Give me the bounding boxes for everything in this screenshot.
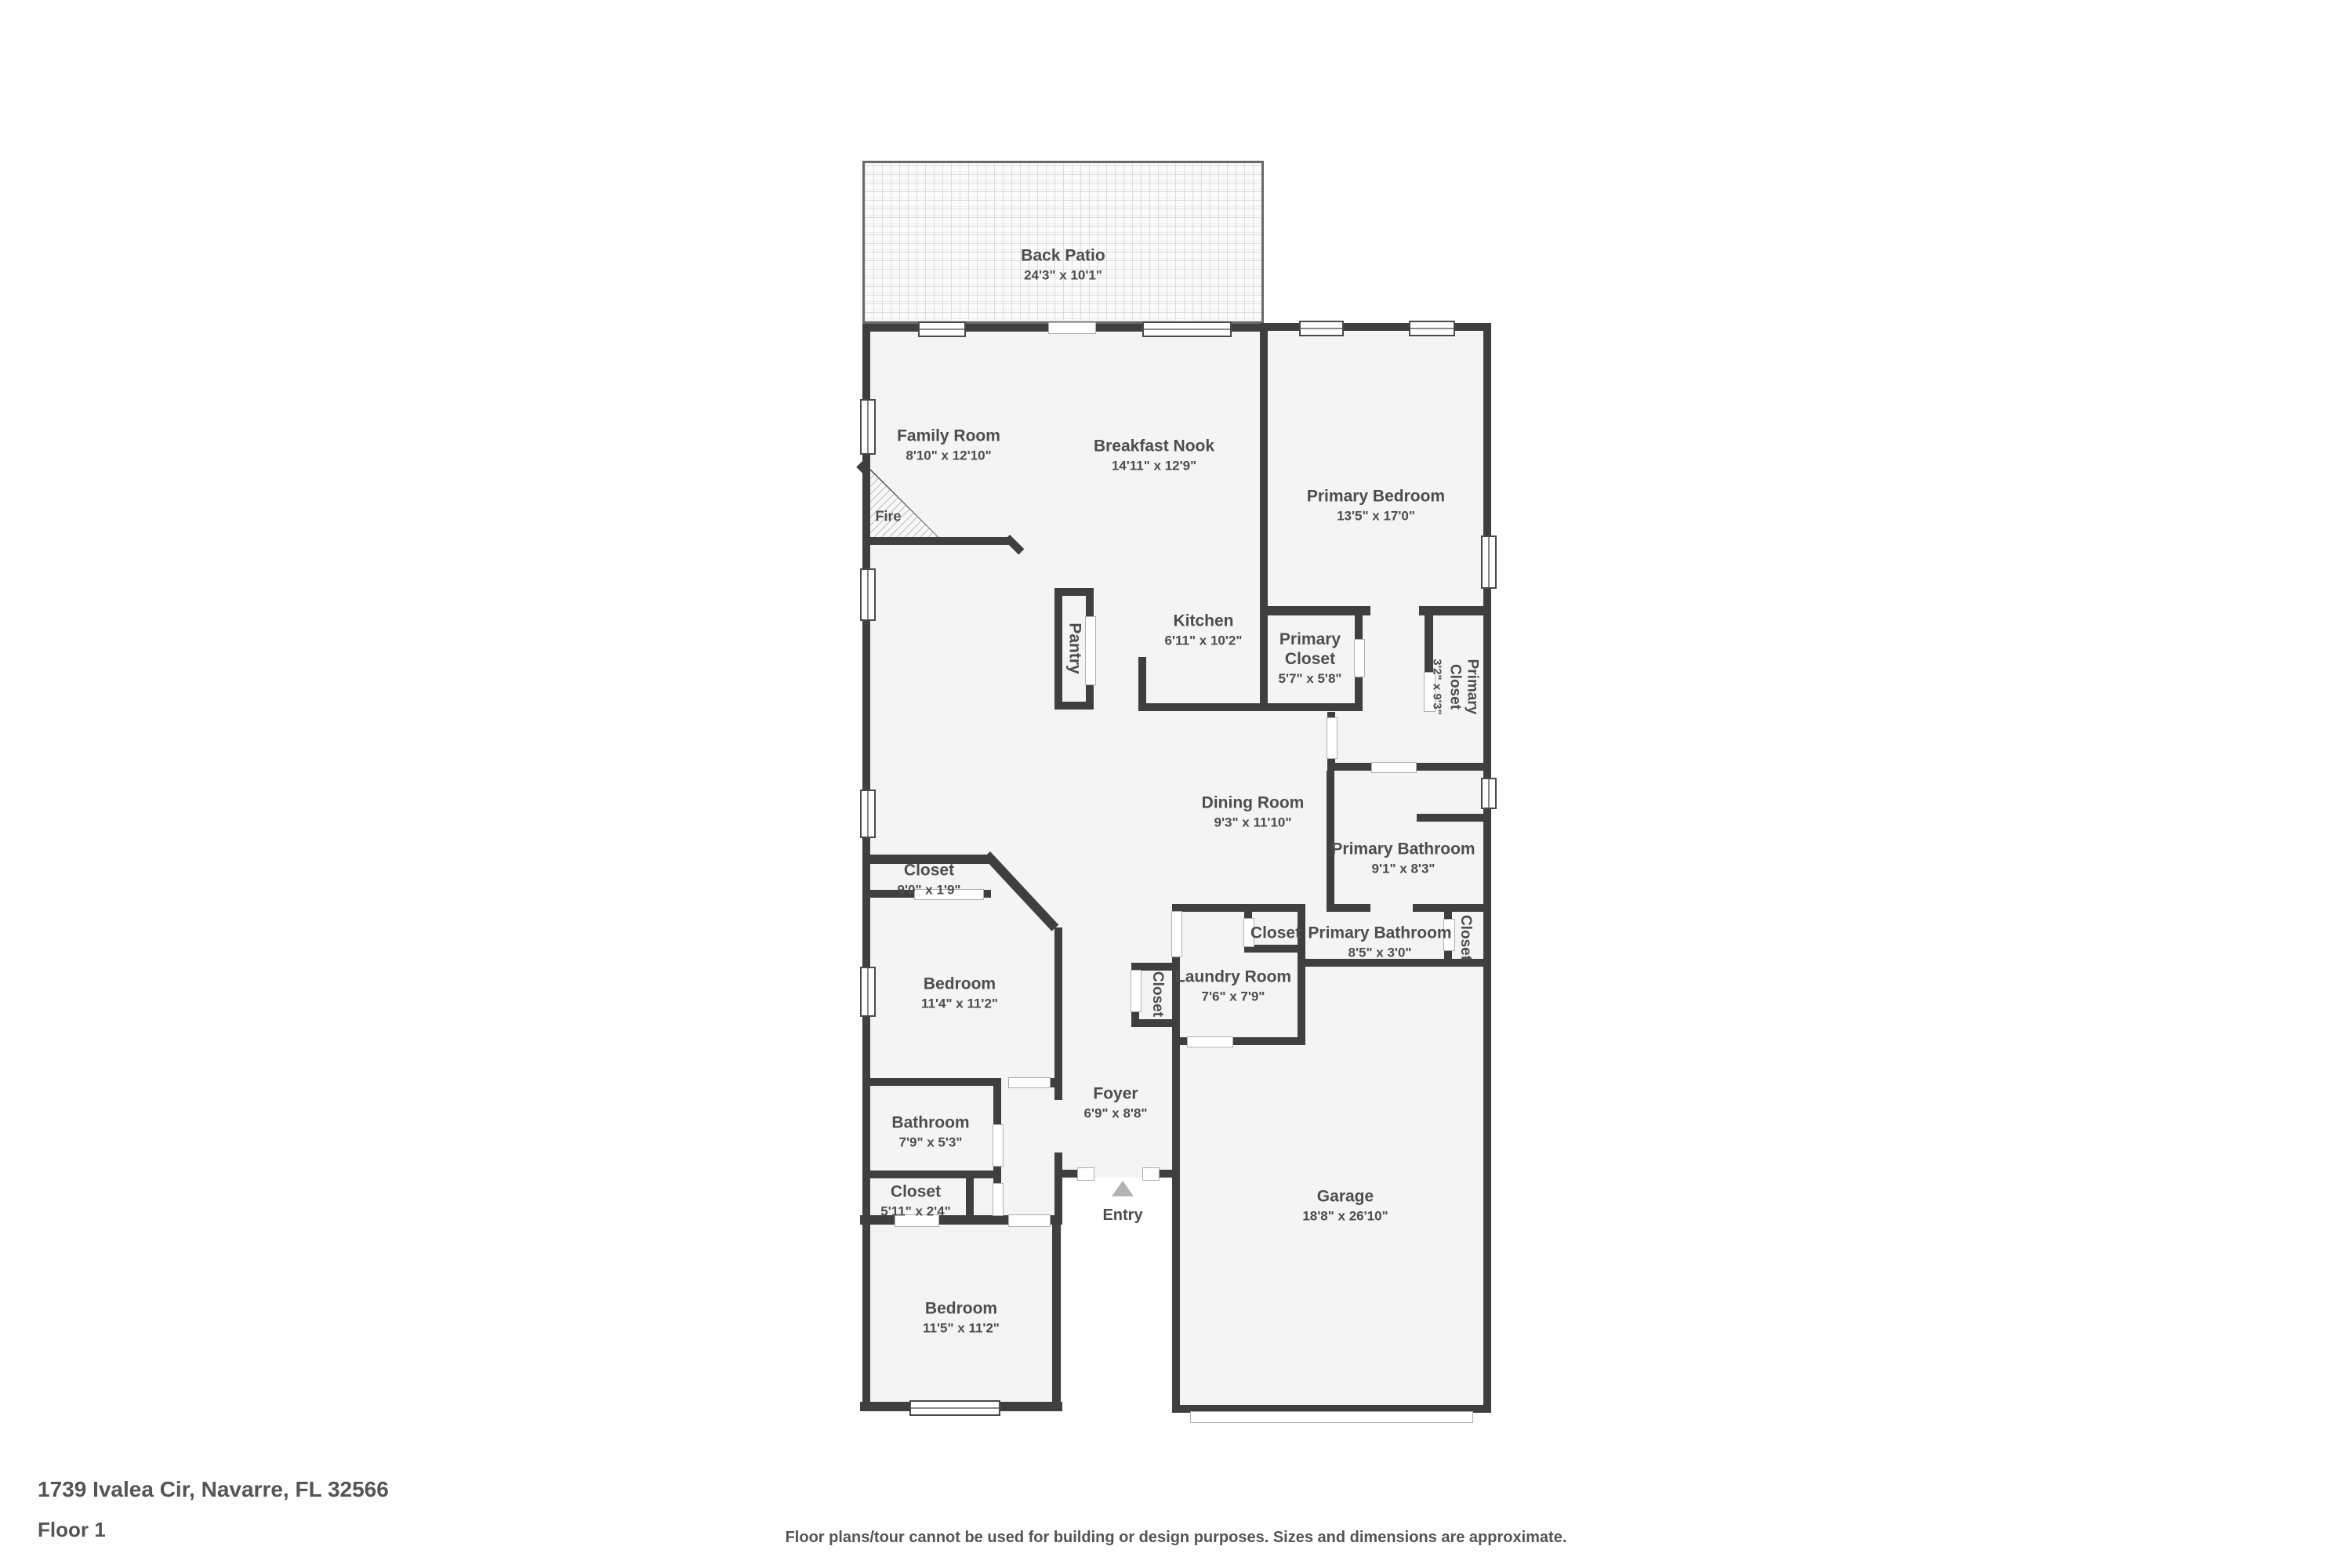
window xyxy=(860,967,876,1017)
wall xyxy=(993,1086,1001,1125)
wall xyxy=(1054,927,1062,1100)
door-opening xyxy=(1327,717,1338,759)
door-opening xyxy=(1008,1214,1051,1227)
room-label-laundry-closet: Closet xyxy=(1250,924,1301,944)
door-opening xyxy=(1048,322,1096,334)
room-label-primary-bedroom: Primary Bedroom13'5" x 17'0" xyxy=(1307,488,1445,524)
window xyxy=(1481,535,1497,589)
wall xyxy=(1483,323,1491,1413)
footer-address: 1739 Ivalea Cir, Navarre, FL 32566 xyxy=(38,1477,389,1502)
door-opening xyxy=(1085,616,1096,685)
room-label-closet-right: Closet xyxy=(1457,915,1474,960)
wall xyxy=(1355,615,1363,641)
wall xyxy=(1260,606,1370,615)
room-label-fireplace: Fire xyxy=(875,508,901,524)
window xyxy=(1299,321,1344,336)
wall xyxy=(1231,1037,1305,1045)
door-opening xyxy=(1187,1036,1233,1047)
door-opening xyxy=(993,1124,1004,1167)
window xyxy=(860,399,876,455)
wall xyxy=(1172,904,1301,912)
room-label-primary-closet-2: Primary Closet3'2" x 9'3" xyxy=(1430,659,1481,714)
door-opening xyxy=(1171,911,1182,957)
wall xyxy=(1172,1045,1180,1405)
wall xyxy=(1172,1037,1188,1045)
room-label-laundry-room: Laundry Room7'6" x 7'9" xyxy=(1175,968,1291,1005)
door-opening xyxy=(1131,970,1142,1012)
room-label-closet-small: Closet5'11" x 2'4" xyxy=(880,1183,950,1220)
room-label-back-patio: Back Patio24'3" x 10'1" xyxy=(1021,247,1105,284)
window xyxy=(918,321,966,337)
wall xyxy=(862,1078,1001,1086)
wall xyxy=(1131,1019,1180,1027)
wall xyxy=(1054,588,1094,596)
door-opening xyxy=(1354,639,1365,677)
room-label-primary-bathroom-1: Primary Bathroom9'1" x 8'3" xyxy=(1331,840,1475,877)
fireplace-wall xyxy=(862,537,1011,545)
door-opening xyxy=(1008,1077,1051,1088)
room-label-primary-closet-1: Primary Closet5'7" x 5'8" xyxy=(1279,630,1342,687)
room-label-family-room: Family Room8'10" x 12'10" xyxy=(897,427,1000,464)
wall xyxy=(1138,657,1146,711)
room-label-bedroom-2: Bedroom11'4" x 11'2" xyxy=(921,975,998,1012)
wall xyxy=(1244,904,1252,919)
wall xyxy=(1260,331,1268,606)
floor-plan-page: Back Patio24'3" x 10'1" Family Room8'10"… xyxy=(0,0,2352,1568)
wall xyxy=(1086,596,1094,617)
wall xyxy=(1413,904,1491,912)
door-opening xyxy=(1371,762,1417,773)
window xyxy=(860,789,876,838)
room-label-primary-bathroom-2: Primary Bathroom8'5" x 3'0" xyxy=(1308,924,1451,961)
entry-door-frame xyxy=(1077,1167,1094,1181)
footer-disclaimer: Floor plans/tour cannot be used for buil… xyxy=(0,1529,2352,1547)
room-label-garage: Garage18'8" x 26'10" xyxy=(1302,1188,1388,1225)
window xyxy=(1409,321,1455,336)
room-label-pantry: Pantry xyxy=(1065,622,1084,673)
wall xyxy=(862,1171,1001,1178)
wall xyxy=(1054,588,1062,710)
window xyxy=(860,568,876,621)
room-label-foyer: Foyer6'9" x 8'8" xyxy=(1084,1085,1148,1122)
wall xyxy=(862,324,870,1411)
entry-door-frame xyxy=(1142,1167,1160,1181)
room-label-entry: Entry xyxy=(1102,1207,1142,1225)
room-label-closet-hall: Closet9'0" x 1'9" xyxy=(898,862,961,898)
room-label-foyer-closet: Closet xyxy=(1149,971,1166,1017)
wall xyxy=(1054,702,1094,710)
window xyxy=(909,1400,1000,1416)
door-opening xyxy=(993,1183,1004,1216)
wall xyxy=(1260,615,1268,711)
wall xyxy=(1138,703,1363,711)
garage-door xyxy=(1190,1411,1473,1423)
room-label-kitchen: Kitchen6'11" x 10'2" xyxy=(1165,612,1243,649)
back-patio-area xyxy=(862,161,1264,324)
wall xyxy=(1355,674,1363,711)
window xyxy=(1481,778,1497,809)
wall xyxy=(1327,771,1334,904)
room-label-bedroom-3: Bedroom11'5" x 11'2" xyxy=(923,1300,1000,1337)
room-label-breakfast-nook: Breakfast Nook14'11" x 12'9" xyxy=(1094,437,1214,474)
wall xyxy=(1260,323,1491,331)
wall xyxy=(1327,904,1370,912)
wall xyxy=(1417,814,1491,822)
window xyxy=(1142,321,1232,337)
room-label-dining-room: Dining Room9'3" x 11'10" xyxy=(1202,794,1305,831)
entry-arrow-icon xyxy=(1112,1181,1134,1196)
room-label-bathroom: Bathroom7'9" x 5'3" xyxy=(891,1114,969,1151)
wall xyxy=(1052,1223,1061,1411)
wall xyxy=(1054,1152,1062,1225)
